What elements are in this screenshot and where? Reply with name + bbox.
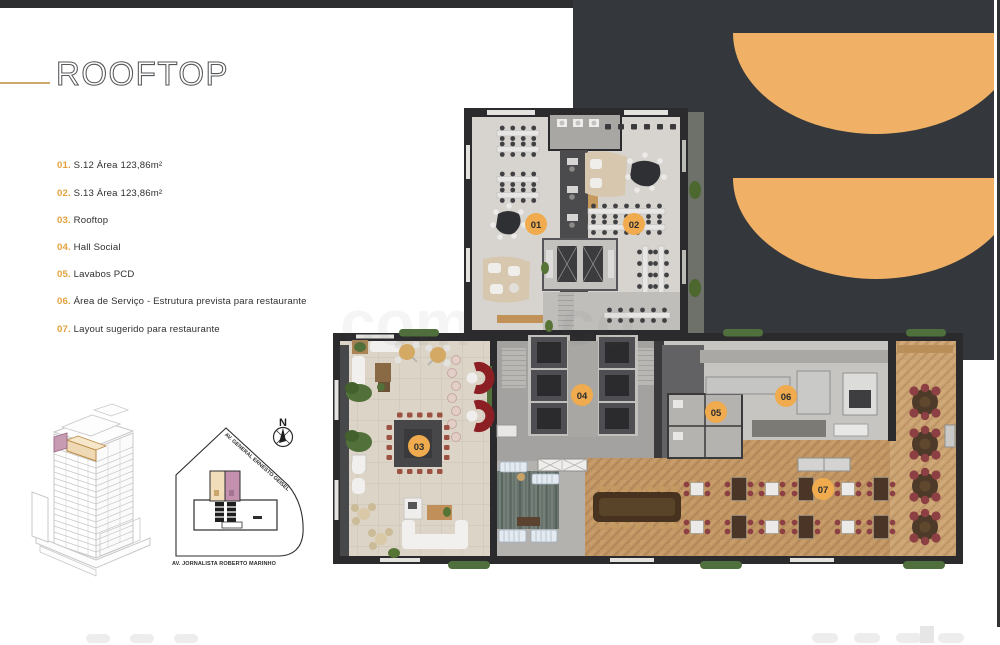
svg-text:com: com: [340, 287, 472, 359]
svg-text:AV. JORNALISTA ROBERTO MARINHO: AV. JORNALISTA ROBERTO MARINHO: [172, 561, 277, 567]
svg-text:co: co: [560, 287, 635, 359]
svg-text:02: 02: [629, 220, 640, 231]
svg-text:01: 01: [531, 220, 542, 231]
svg-text:04: 04: [577, 391, 588, 402]
svg-text:07: 07: [818, 485, 829, 496]
svg-text:06: 06: [781, 392, 792, 403]
svg-text:03: 03: [414, 442, 425, 453]
svg-text:05: 05: [711, 408, 722, 419]
